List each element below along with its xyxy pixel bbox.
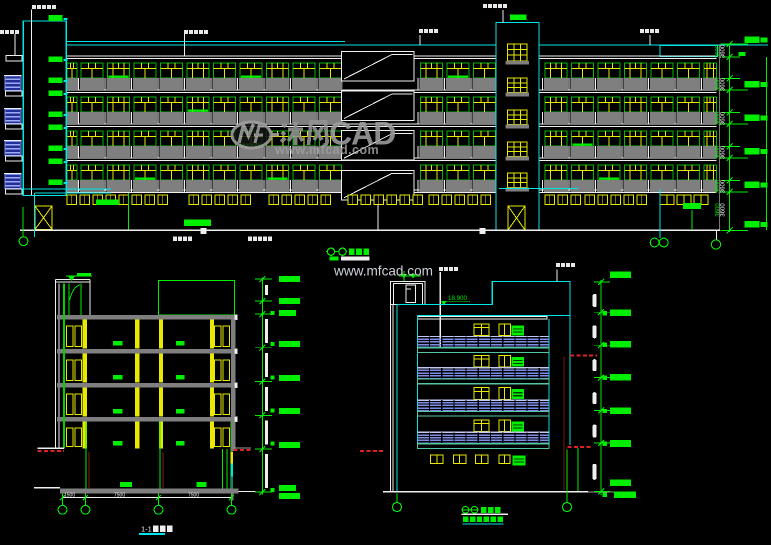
svg-text:www.mfcad.com: www.mfcad.com [333,264,433,279]
svg-text:1-1: 1-1 [141,525,152,534]
svg-text:3600: 3600 [716,44,722,58]
svg-text:3600: 3600 [716,203,722,217]
svg-text:www.mfcad.com: www.mfcad.com [274,143,379,157]
svg-text:3600: 3600 [716,111,722,125]
svg-text:3600: 3600 [716,77,722,91]
svg-text:7500: 7500 [188,493,199,499]
svg-text:3600: 3600 [716,179,722,193]
svg-text:1500: 1500 [64,493,75,499]
svg-text:3600: 3600 [716,145,722,159]
svg-text:7500: 7500 [114,493,125,499]
